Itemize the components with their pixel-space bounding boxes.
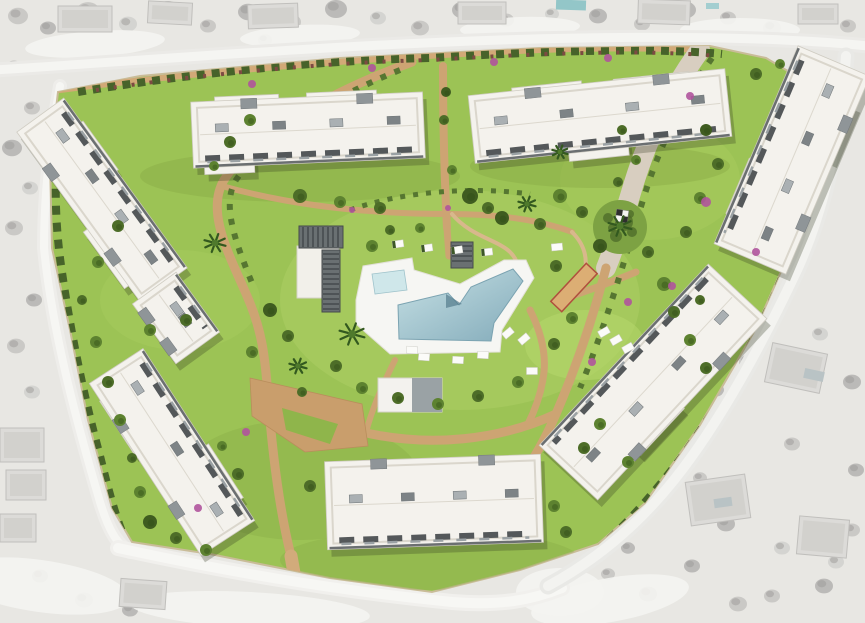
tree xyxy=(613,177,623,187)
flowering-shrub xyxy=(445,205,451,211)
neighbour-pool xyxy=(556,0,586,11)
tree xyxy=(700,362,712,374)
grey-tree xyxy=(684,559,700,572)
grey-tree xyxy=(589,9,607,24)
tree xyxy=(441,87,451,97)
tree xyxy=(232,468,244,480)
neighbour-villa xyxy=(147,1,192,25)
tree xyxy=(293,189,307,203)
tree xyxy=(304,480,316,492)
neighbour-villa xyxy=(0,514,36,542)
tree xyxy=(495,211,509,225)
flowering-shrub xyxy=(588,358,596,366)
sun-lounger xyxy=(527,368,538,375)
grey-tree xyxy=(815,579,833,594)
tree xyxy=(482,202,494,214)
pergola-west xyxy=(299,226,343,248)
masterplan-svg xyxy=(0,0,865,623)
tree xyxy=(282,330,294,342)
tree xyxy=(134,486,146,498)
pergola-west-wing xyxy=(322,250,340,312)
tree xyxy=(700,124,712,136)
footpath-pool-north xyxy=(447,228,449,256)
tree xyxy=(246,346,258,358)
tree xyxy=(170,532,182,544)
tree xyxy=(366,240,378,252)
tree xyxy=(385,225,395,235)
grey-tree xyxy=(848,463,864,476)
round-garden-planting xyxy=(603,213,613,223)
neighbour-villa xyxy=(796,516,849,558)
tree xyxy=(415,223,425,233)
flowering-shrub xyxy=(686,92,694,100)
tree xyxy=(200,544,212,556)
block-south xyxy=(324,453,543,549)
tree xyxy=(684,334,696,346)
grey-tree xyxy=(764,589,780,602)
tree xyxy=(553,189,567,203)
grey-tree xyxy=(8,8,28,24)
tree xyxy=(594,418,606,430)
sun-lounger xyxy=(418,353,429,361)
tree xyxy=(263,303,277,317)
tree xyxy=(209,161,219,171)
tree xyxy=(472,390,484,402)
neighbour-villa xyxy=(0,428,44,462)
tree xyxy=(334,196,346,208)
tree xyxy=(548,500,560,512)
tree xyxy=(578,442,590,454)
tree xyxy=(462,188,478,204)
flowering-shrub xyxy=(242,428,250,436)
grey-tree xyxy=(24,385,40,398)
flowering-shrub xyxy=(490,58,498,66)
tree xyxy=(534,218,546,230)
tree xyxy=(695,295,705,305)
grey-tree xyxy=(812,327,828,340)
tree xyxy=(112,220,124,232)
grey-tree xyxy=(370,11,386,24)
tree xyxy=(576,206,588,218)
grey-tree xyxy=(325,0,347,18)
tree xyxy=(439,115,449,125)
sun-lounger xyxy=(481,248,493,256)
tree xyxy=(566,312,578,324)
grey-tree xyxy=(119,17,137,32)
tree xyxy=(432,398,444,410)
tree xyxy=(144,324,156,336)
tree xyxy=(77,295,87,305)
neighbour-villa xyxy=(6,470,46,500)
grey-tree xyxy=(5,221,23,236)
neighbour-villa xyxy=(119,578,167,609)
tree xyxy=(548,338,560,350)
tree xyxy=(712,158,724,170)
flowering-shrub xyxy=(624,298,632,306)
tree xyxy=(127,453,137,463)
grey-tree xyxy=(22,181,38,194)
grey-tree xyxy=(2,140,22,156)
grey-tree xyxy=(774,541,790,554)
tree xyxy=(617,125,627,135)
grey-tree xyxy=(26,293,42,306)
sun-lounger xyxy=(451,246,463,254)
neighbour-villa xyxy=(58,6,112,32)
sun-lounger xyxy=(406,346,417,354)
flowering-shrub xyxy=(752,248,760,256)
tree xyxy=(560,526,572,538)
tree xyxy=(512,376,524,388)
tree xyxy=(622,456,634,468)
tree xyxy=(102,376,114,388)
flowering-shrub xyxy=(349,207,355,213)
tree xyxy=(244,114,256,126)
tree xyxy=(593,239,607,253)
tree xyxy=(447,165,457,175)
neighbour-villa xyxy=(798,4,838,24)
grey-tree xyxy=(843,375,861,390)
flowering-shrub xyxy=(668,282,676,290)
tree xyxy=(297,387,307,397)
sun-lounger xyxy=(421,244,433,252)
tree xyxy=(92,256,104,268)
tree xyxy=(550,260,562,272)
tree xyxy=(392,392,404,404)
tree xyxy=(750,68,762,80)
sun-lounger xyxy=(452,356,463,364)
grey-tree xyxy=(729,597,747,612)
tree xyxy=(775,59,785,69)
tree xyxy=(224,136,236,148)
tree xyxy=(374,202,386,214)
tree xyxy=(114,414,126,426)
neighbour-villa xyxy=(248,3,299,29)
neighbour-villa xyxy=(458,2,506,24)
tree xyxy=(356,382,368,394)
masterplan-aerial-render: Aerial masterplan render of a residentia… xyxy=(0,0,865,623)
grey-tree xyxy=(784,437,800,450)
tree xyxy=(143,515,157,529)
tree xyxy=(217,441,227,451)
flowering-shrub xyxy=(194,504,202,512)
tree xyxy=(330,360,342,372)
grey-tree xyxy=(7,339,25,354)
flowering-shrub xyxy=(701,197,711,207)
tree xyxy=(680,226,692,238)
tree xyxy=(90,336,102,348)
flowering-shrub xyxy=(604,54,612,62)
grey-tree xyxy=(40,21,56,34)
sun-lounger xyxy=(551,243,563,251)
grey-tree xyxy=(24,101,40,114)
grey-tree xyxy=(840,19,856,32)
tree xyxy=(631,155,641,165)
kids-pool xyxy=(372,270,407,294)
grey-tree xyxy=(200,19,216,32)
sun-lounger xyxy=(392,240,404,248)
tree xyxy=(668,306,680,318)
neighbour-pool xyxy=(706,3,719,9)
flowering-shrub xyxy=(248,80,256,88)
neighbour-villa xyxy=(638,0,691,25)
flowering-shrub xyxy=(368,64,376,72)
tree xyxy=(180,314,192,326)
grey-tree xyxy=(411,21,429,36)
sun-lounger xyxy=(477,351,488,359)
tree xyxy=(642,246,654,258)
